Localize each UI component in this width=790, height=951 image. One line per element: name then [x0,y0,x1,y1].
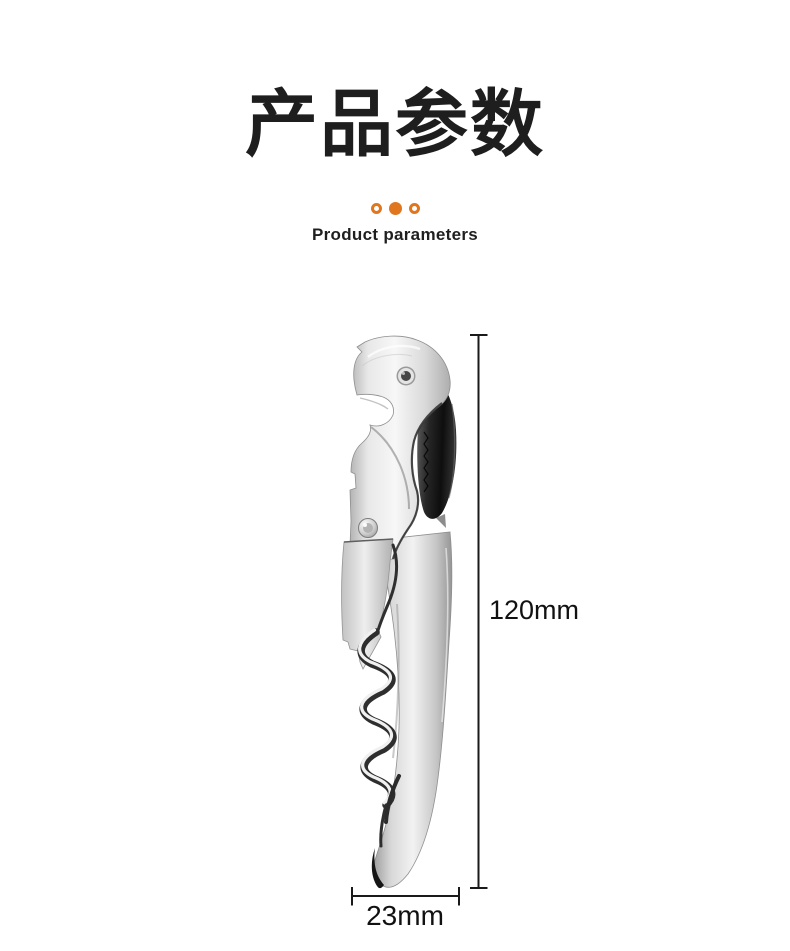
corkscrew-lever-arm [342,539,397,669]
head-hole-icon [397,367,416,386]
corkscrew-product-image [0,0,790,951]
height-dimension-line [470,335,488,888]
hinge-rivet-icon [359,519,378,538]
page: 产品参数 Product parameters [0,0,790,951]
height-dimension-label: 120mm [489,595,579,626]
width-dimension-label: 23mm [341,900,469,932]
